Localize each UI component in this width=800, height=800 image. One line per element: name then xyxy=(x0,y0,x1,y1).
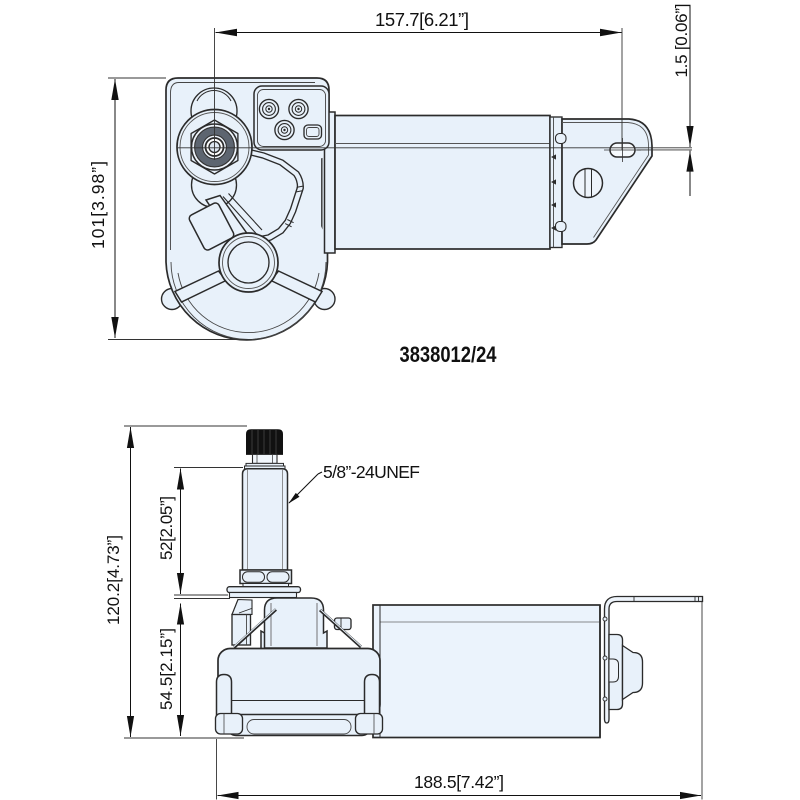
svg-text:5/8”-24UNEF: 5/8”-24UNEF xyxy=(323,462,420,482)
svg-text:188.5[7.42”]: 188.5[7.42”] xyxy=(414,772,504,792)
svg-text:54.5[2.15”]: 54.5[2.15”] xyxy=(157,628,176,710)
svg-text:120.2[4.73”]: 120.2[4.73”] xyxy=(104,535,123,625)
svg-text:101[3.98”]: 101[3.98”] xyxy=(88,161,108,249)
svg-text:52[2.05”]: 52[2.05”] xyxy=(157,496,176,560)
svg-text:157.7[6.21”]: 157.7[6.21”] xyxy=(375,9,469,30)
svg-text:3838012/24: 3838012/24 xyxy=(400,342,498,367)
svg-text:1.5 [0.06”]: 1.5 [0.06”] xyxy=(672,4,691,78)
